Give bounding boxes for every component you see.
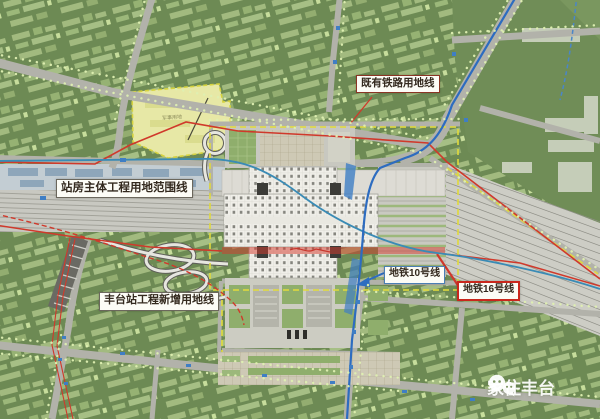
label-fengtai-new-land: 丰台站工程新增用地线 [99,292,219,311]
landscaped-grid [218,352,400,385]
label-military-parcel: 军事用地 [162,113,182,121]
map-canvas [0,0,600,419]
label-existing-railway: 既有铁路用地线 [356,75,440,93]
north-plaza [225,126,355,168]
watermark: 家住丰台 [487,374,555,399]
label-metro-line-10: 地铁10号线 [384,266,445,284]
site-plan-map: 站房主体工程用地范围线 既有铁路用地线 丰台站工程新增用地线 地铁10号线 地铁… [0,0,600,419]
label-station-main-boundary: 站房主体工程用地范围线 [56,179,193,198]
wechat-icon [487,374,519,398]
label-metro-line-16: 地铁16号线 [457,281,520,301]
